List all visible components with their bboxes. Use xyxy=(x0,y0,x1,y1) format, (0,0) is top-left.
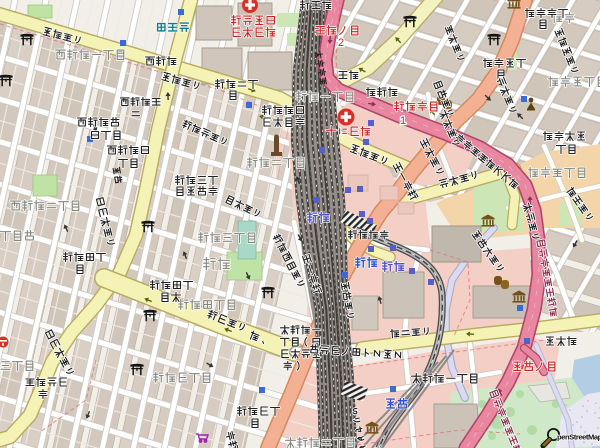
svg-text:1: 1 xyxy=(400,115,406,127)
svg-text:penStreetMap: penStreetMap xyxy=(557,433,600,442)
svg-text:2: 2 xyxy=(338,37,344,49)
